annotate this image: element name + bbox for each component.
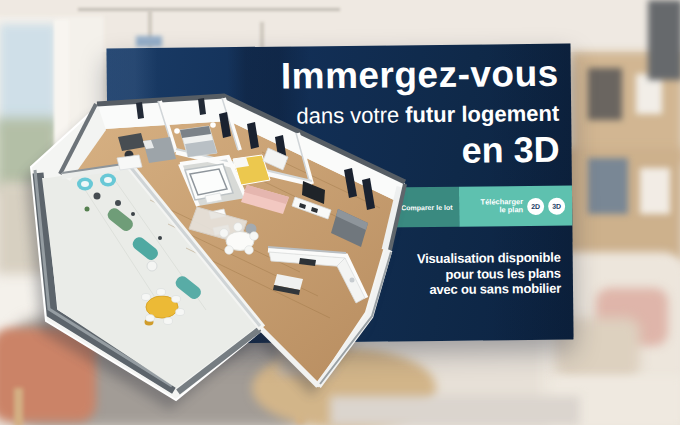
pink-cushion <box>596 288 668 346</box>
picture-frame <box>640 168 670 214</box>
compare-lot-section[interactable]: Comparer le lot <box>378 187 459 228</box>
window-trees <box>0 118 58 192</box>
tagline-line1: Visualisation disponible <box>417 250 561 267</box>
subheadline-bold: futur logement <box>405 101 559 128</box>
wall-shelf <box>562 148 680 262</box>
picture-frame <box>636 74 662 114</box>
chair-leg <box>296 384 305 424</box>
download-2d-button[interactable]: 2D <box>527 197 544 214</box>
download-3d-button[interactable]: 3D <box>548 197 565 214</box>
curtain-rod <box>148 10 152 48</box>
coffee-table <box>252 348 436 425</box>
headline-3d: en 3D <box>461 129 559 172</box>
ceiling <box>0 0 680 52</box>
chair-leg <box>14 388 23 425</box>
picture-frame <box>588 158 628 214</box>
download-plan-label-line2: le plan <box>481 206 524 215</box>
curtain-rod <box>260 22 264 48</box>
subheadline-regular: dans votre <box>296 102 399 128</box>
tagline: Visualisation disponible pour tous les p… <box>417 250 561 298</box>
wall-shelf <box>572 52 680 164</box>
decor-blur <box>136 36 162 47</box>
headline: Immergez-vous <box>281 53 559 98</box>
window-sky <box>0 24 56 132</box>
compare-lot-label[interactable]: Comparer le lot <box>401 203 452 211</box>
window-frame <box>0 16 104 352</box>
checkbox-unchecked-icon[interactable] <box>387 203 396 212</box>
orange-cushion <box>0 328 96 422</box>
plan-toolbar: Comparer le lot Télécharger le plan 2D 3… <box>378 186 572 228</box>
tagline-line2: pour tous les plans <box>417 265 561 282</box>
curtain-rail <box>78 8 340 11</box>
ottoman <box>552 376 680 425</box>
subheadline: dans votrefutur logement <box>296 101 559 130</box>
download-plan-section: Télécharger le plan 2D 3D <box>459 186 572 227</box>
promo-graphic: Immergez-vous dans votrefutur logement e… <box>0 0 680 425</box>
download-plan-label: Télécharger le plan <box>481 198 524 215</box>
picture-frame <box>648 0 680 80</box>
promo-banner: Immergez-vous dans votrefutur logement e… <box>106 44 573 345</box>
window-mullion <box>54 20 69 320</box>
window-ground <box>0 182 60 274</box>
rug <box>330 396 580 425</box>
tagline-line3: avec ou sans mobilier <box>417 281 561 298</box>
picture-frame <box>588 68 622 120</box>
